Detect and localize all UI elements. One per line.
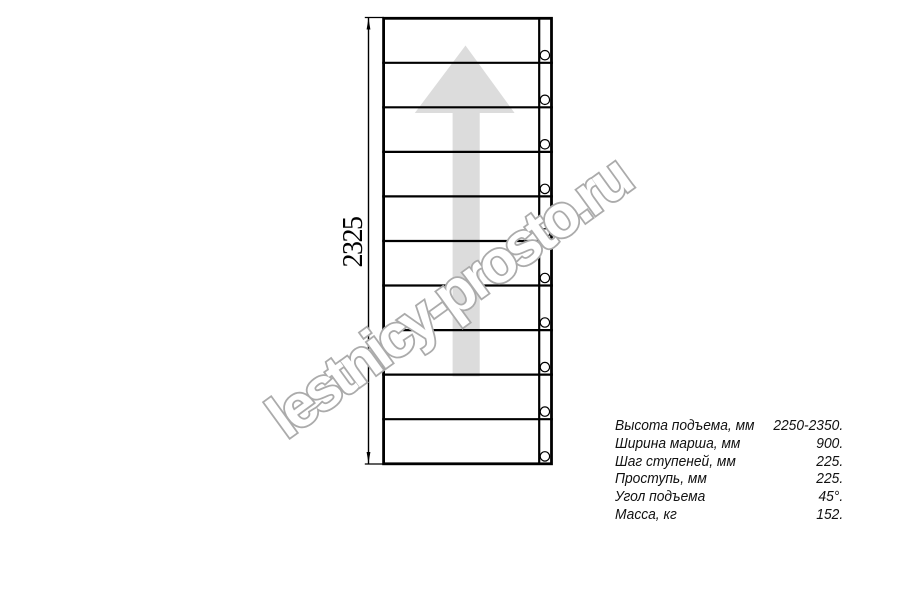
svg-text:2325: 2325	[338, 217, 369, 268]
svg-text:lestnicy-prosto.ru: lestnicy-prosto.ru	[255, 144, 642, 451]
